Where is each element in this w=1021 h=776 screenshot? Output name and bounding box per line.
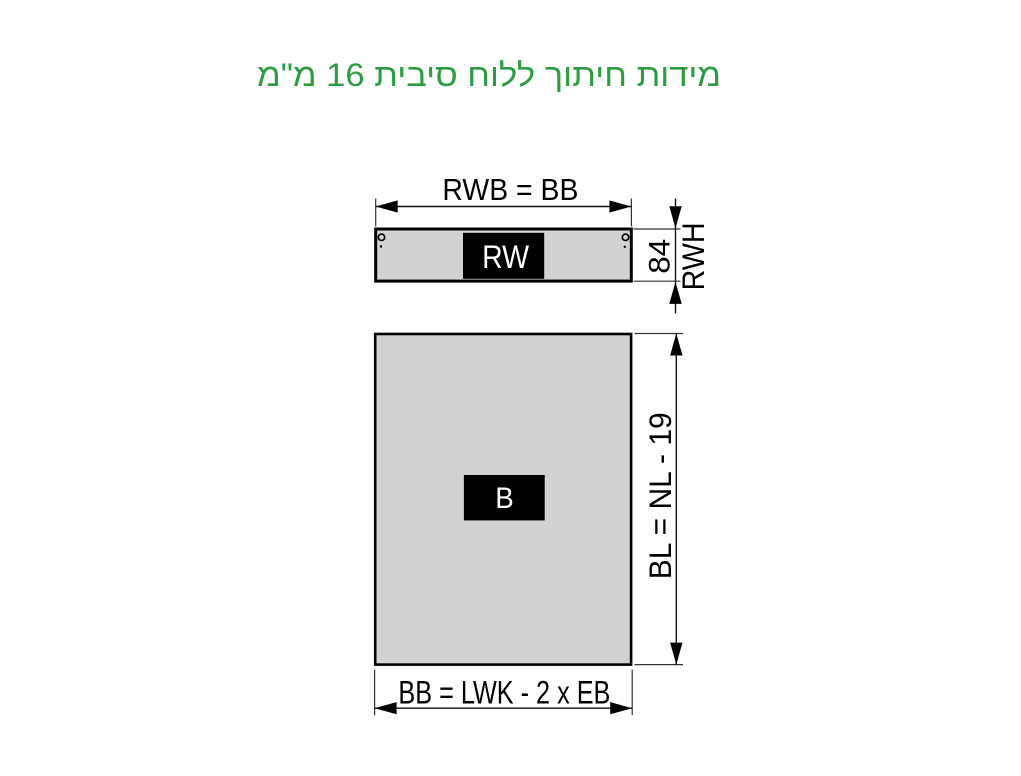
svg-text:BL = NL - 19: BL = NL - 19 — [642, 412, 678, 579]
svg-text:RWH: RWH — [675, 222, 711, 290]
svg-text:84: 84 — [644, 239, 677, 274]
svg-text:מידות חיתוך ללוח סיבית 16 מ"מ: מידות חיתוך ללוח סיבית 16 מ"מ — [257, 57, 721, 93]
svg-text:B: B — [495, 482, 514, 515]
svg-text:BB = LWK - 2 x EB: BB = LWK - 2 x EB — [398, 674, 610, 710]
svg-text:RW: RW — [482, 239, 529, 275]
svg-text:RWB = BB: RWB = BB — [442, 172, 578, 207]
